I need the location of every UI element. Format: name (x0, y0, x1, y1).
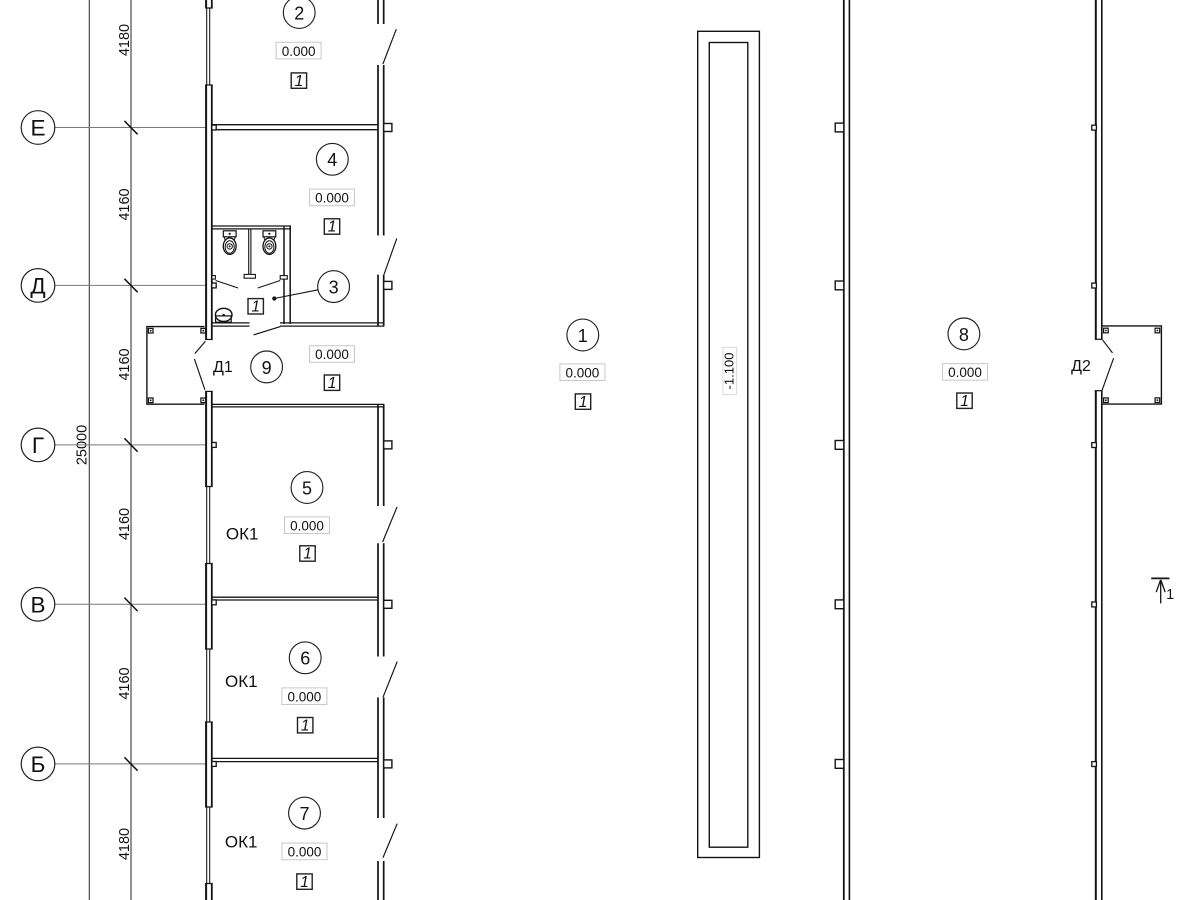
svg-text:Е: Е (30, 116, 45, 141)
svg-text:1: 1 (578, 326, 588, 346)
svg-text:4160: 4160 (117, 188, 133, 220)
svg-text:1: 1 (1166, 587, 1174, 603)
svg-text:8: 8 (959, 325, 969, 345)
svg-text:1: 1 (328, 375, 337, 392)
svg-text:6: 6 (300, 649, 310, 669)
svg-text:0.000: 0.000 (290, 518, 324, 533)
svg-text:0.000: 0.000 (282, 44, 316, 59)
svg-text:0.000: 0.000 (315, 347, 349, 362)
svg-text:ОК1: ОК1 (225, 833, 258, 852)
svg-text:2: 2 (294, 3, 304, 23)
svg-text:4160: 4160 (117, 667, 133, 699)
svg-text:-1.100: -1.100 (721, 353, 736, 390)
svg-text:В: В (30, 593, 45, 618)
svg-text:5: 5 (302, 478, 312, 498)
svg-text:4160: 4160 (117, 508, 133, 540)
svg-text:0.000: 0.000 (948, 365, 982, 380)
svg-text:Д: Д (30, 274, 45, 299)
svg-text:4180: 4180 (117, 828, 133, 860)
svg-text:4180: 4180 (117, 24, 133, 56)
svg-text:1: 1 (303, 546, 312, 563)
svg-text:Д2: Д2 (1071, 358, 1091, 375)
svg-text:0.000: 0.000 (288, 845, 322, 860)
svg-text:0.000: 0.000 (315, 191, 349, 206)
svg-text:1: 1 (328, 219, 337, 236)
svg-text:3: 3 (329, 278, 339, 298)
svg-text:4160: 4160 (117, 348, 133, 380)
svg-text:1: 1 (300, 874, 309, 891)
svg-text:ОК1: ОК1 (226, 524, 259, 543)
svg-text:0.000: 0.000 (566, 365, 600, 380)
svg-text:1: 1 (960, 393, 969, 410)
svg-text:7: 7 (299, 804, 309, 824)
svg-text:0.000: 0.000 (288, 689, 322, 704)
svg-text:1: 1 (295, 73, 304, 90)
svg-text:1: 1 (301, 717, 310, 734)
svg-text:4: 4 (327, 150, 337, 170)
svg-text:Д1: Д1 (213, 359, 233, 376)
svg-text:Б: Б (31, 752, 46, 777)
svg-text:ОК1: ОК1 (225, 672, 258, 691)
svg-text:1: 1 (251, 299, 260, 316)
svg-text:9: 9 (262, 358, 272, 378)
svg-text:1: 1 (579, 394, 588, 411)
svg-text:Г: Г (32, 433, 44, 458)
